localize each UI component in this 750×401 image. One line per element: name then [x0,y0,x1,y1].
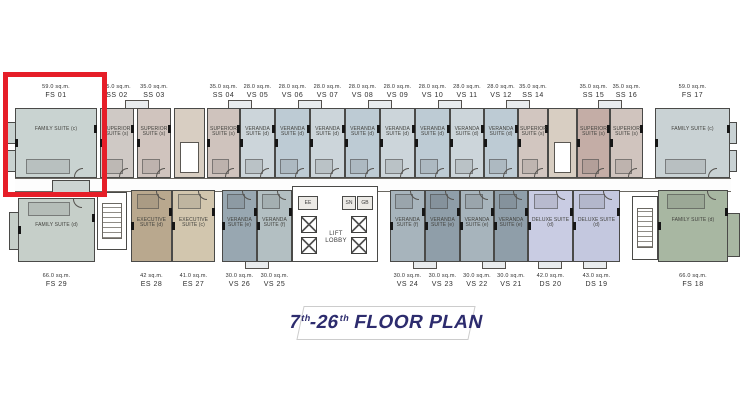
unit-fs29: FAMILY SUITE (d) [18,198,95,262]
wall-mark [577,139,580,147]
unit-vs11: VERANDA SUITE (d) [450,108,484,178]
lift-core: EE SN GB LIFT LOBBY [292,186,378,262]
service-core-top-left [174,108,205,178]
unit-type-label: VERANDA SUITE (e) [427,218,458,229]
unit-type-label: VERANDA SUITE (f) [259,218,290,229]
unit-vs24: VERANDA SUITE (f) [390,190,425,262]
balcony-tab [583,261,607,269]
bathroom-area [227,194,245,209]
title-floor-plan-text: FLOOR PLAN [352,312,485,333]
unit-type-label: SUPERIOR SUITE (s) [612,127,641,138]
bathroom-area [665,159,706,174]
unit-ds19: DELUXE SUITE (d) [573,190,620,262]
unit-type-label: DELUXE SUITE (d) [530,218,571,229]
unit-label-fs18: 66.0 sq.m.FS 18 [663,272,723,289]
wall-mark [212,208,215,216]
bathroom-area [178,194,201,209]
unit-label-ds19: 43.0 sq.m.DS 19 [567,272,627,289]
unit-type-label: FAMILY SUITE (d) [660,218,726,224]
unit-vs05: VERANDA SUITE (d) [240,108,275,178]
title-floor-end: -26 [308,312,341,333]
unit-area-label: 43.0 sq.m. [567,272,627,280]
unit-type-label: SUPERIOR SUITE (s) [520,127,546,138]
wall-mark [450,139,453,147]
wall-mark [289,208,292,216]
unit-vs26: VERANDA SUITE (e) [222,190,257,262]
building-wing [729,150,737,172]
unit-es28: EXECUTIVE SUITE (d) [131,190,172,262]
unit-code-label: FS 17 [663,91,723,100]
wall-mark [275,139,278,147]
lift-lobby-label: LIFT LOBBY [319,231,353,245]
wall-mark [137,139,140,147]
unit-vs12: VERANDA SUITE (d) [484,108,518,178]
wall-mark [380,139,383,147]
bathroom-area [395,194,413,209]
floor-plan-image: FAMILY SUITE (c)59.0 sq.m.FS 01SUPERIOR … [0,0,750,401]
unit-ss03: SUPERIOR SUITE (s) [137,108,171,178]
unit-ss14: SUPERIOR SUITE (s) [518,108,548,178]
unit-area-label: 35.0 sq.m. [597,83,657,91]
wall-mark [310,139,313,147]
bathroom-area [534,194,558,209]
unit-area-label: 59.0 sq.m. [663,83,723,91]
unit-vs06: VERANDA SUITE (d) [275,108,310,178]
balcony-tab [538,261,562,269]
title-sup-2: th [339,313,351,323]
unit-type-label: VERANDA SUITE (d) [486,127,516,138]
balcony-tab [413,261,437,269]
bathroom-area [28,202,70,216]
wall-mark [415,139,418,147]
unit-type-label: SUPERIOR SUITE (s) [139,127,169,138]
stair-treads [637,208,654,248]
room-gb: GB [357,196,373,210]
stair-left [97,192,127,250]
wall-mark [484,139,487,147]
unit-type-label: SUPERIOR SUITE (s) [209,127,238,138]
unit-vs22: VERANDA SUITE (e) [460,190,494,262]
unit-code-label: SS 03 [124,91,184,100]
bathroom-area [579,194,604,209]
wall-mark [518,139,521,147]
unit-type-label: DELUXE SUITE (d) [575,218,618,229]
unit-ss16: SUPERIOR SUITE (s) [610,108,643,178]
unit-vs25: VERANDA SUITE (f) [257,190,292,262]
unit-vs07: VERANDA SUITE (d) [310,108,345,178]
unit-ss04: SUPERIOR SUITE (s) [207,108,240,178]
unit-type-label: FAMILY SUITE (c) [657,127,728,133]
unit-code-label: FS 18 [663,280,723,289]
unit-vs09: VERANDA SUITE (d) [380,108,415,178]
unit-type-label: VERANDA SUITE (f) [392,218,423,229]
unit-type-label: VERANDA SUITE (d) [417,127,448,138]
wall-mark [345,139,348,147]
unit-label-fs17: 59.0 sq.m.FS 17 [663,83,723,100]
building-wing [729,122,737,144]
wall-mark [725,208,728,216]
lift-shaft-icon [351,237,367,254]
unit-label-ss16: 35.0 sq.m.SS 16 [597,83,657,100]
floor-plan-title: 7th-26thFLOOR PLAN [287,312,485,334]
balcony-tab [245,261,269,269]
door-arc-icon [708,168,717,177]
unit-type-label: SUPERIOR SUITE (s) [579,127,608,138]
unit-area-label: 35.0 sq.m. [503,83,563,91]
door-arc-icon [73,199,82,208]
balcony-tab [482,261,506,269]
unit-vs08: VERANDA SUITE (d) [345,108,380,178]
unit-es27: EXECUTIVE SUITE (c) [172,190,215,262]
door-arc-icon [707,191,716,200]
unit-area-label: 66.0 sq.m. [27,272,87,280]
unit-type-label: VERANDA SUITE (d) [347,127,378,138]
unit-type-label: EXECUTIVE SUITE (d) [133,218,170,229]
unit-area-label: 30.0 sq.m. [245,272,305,280]
unit-label-ss14: 35.0 sq.m.SS 14 [503,83,563,100]
unit-type-label: VERANDA SUITE (e) [462,218,492,229]
bathroom-area [430,194,448,209]
unit-area-label: 66.0 sq.m. [663,272,723,280]
unit-label-fs29: 66.0 sq.m.FS 29 [27,272,87,289]
unit-fs17: FAMILY SUITE (c) [655,108,730,178]
unit-code-label: VS 25 [245,280,305,289]
room-ee: EE [298,196,318,210]
bathroom-area [262,194,280,209]
bathroom-area [137,194,159,209]
lift-shaft-icon [301,237,317,254]
room-sn: SN [342,196,356,210]
unit-type-label: VERANDA SUITE (d) [312,127,343,138]
unit-code-label: SS 14 [503,91,563,100]
unit-label-ss03: 35.0 sq.m.SS 03 [124,83,184,100]
lift-shaft-icon [301,216,317,233]
wall-mark [207,139,210,147]
stair-right [632,196,658,260]
unit-code-label: FS 29 [27,280,87,289]
unit-label-vs25: 30.0 sq.m.VS 25 [245,272,305,289]
wall-mark [92,214,95,222]
unit-fs18: FAMILY SUITE (d) [658,190,728,262]
highlight-box-fs01 [3,72,107,197]
unit-code-label: DS 19 [567,280,627,289]
unit-area-label: 35.0 sq.m. [124,83,184,91]
unit-type-label: VERANDA SUITE (e) [224,218,255,229]
unit-ss15: SUPERIOR SUITE (s) [577,108,610,178]
unit-vs10: VERANDA SUITE (d) [415,108,450,178]
service-core-top-right [548,108,577,178]
unit-type-label: VERANDA SUITE (d) [382,127,413,138]
unit-type-label: VERANDA SUITE (d) [277,127,308,138]
unit-type-label: VERANDA SUITE (d) [452,127,482,138]
unit-type-label: VERANDA SUITE (e) [496,218,526,229]
stair-treads [102,203,122,239]
lift-shaft-icon [351,216,367,233]
unit-type-label: VERANDA SUITE (d) [242,127,273,138]
wall-mark [655,139,658,147]
wall-mark [617,208,620,216]
unit-code-label: SS 16 [597,91,657,100]
bathroom-area [667,194,705,209]
wall-mark [240,139,243,147]
wall-mark [610,139,613,147]
floor-plan-banner: 7th-26thFLOOR PLAN [296,306,475,340]
unit-vs23: VERANDA SUITE (e) [425,190,460,262]
unit-type-label: EXECUTIVE SUITE (c) [174,218,213,229]
building-wing [727,213,740,257]
unit-type-label: FAMILY SUITE (d) [20,223,93,229]
unit-vs21: VERANDA SUITE (e) [494,190,528,262]
unit-ds20: DELUXE SUITE (d) [528,190,573,262]
